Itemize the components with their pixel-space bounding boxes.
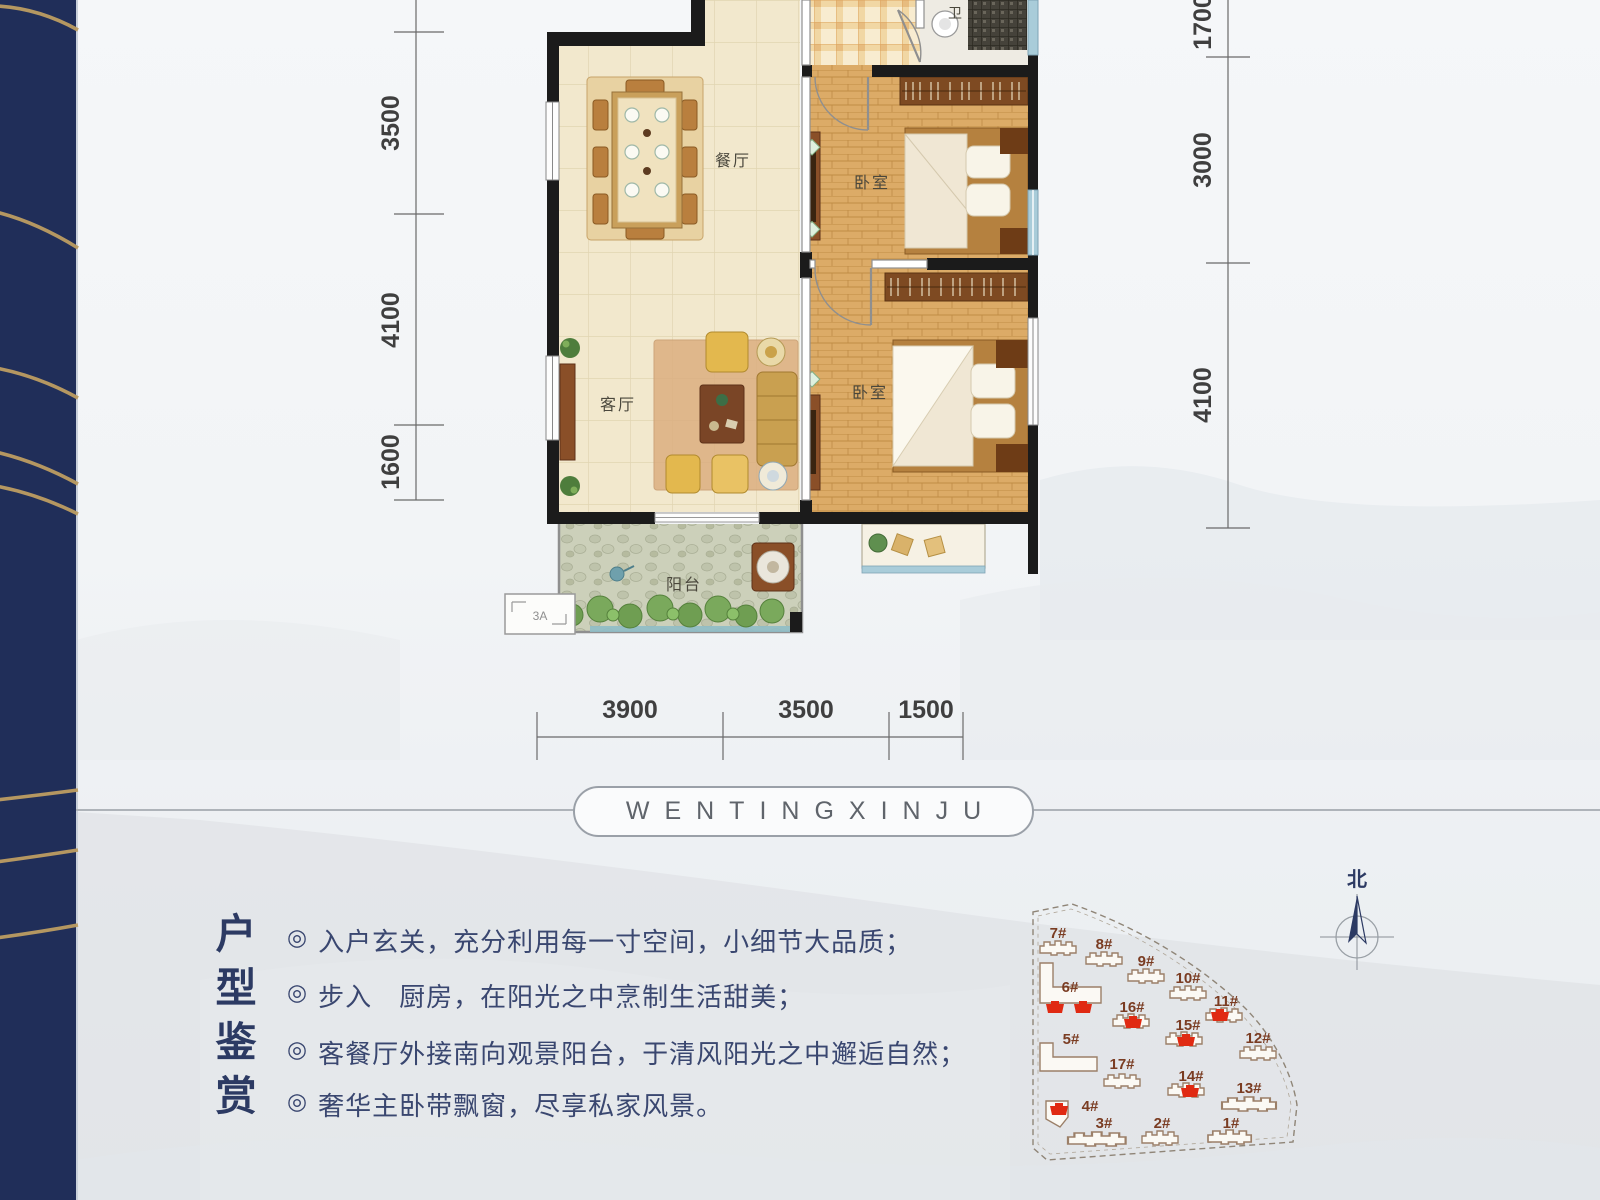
building-label-3: 3#	[1096, 1115, 1113, 1132]
floor-plan: 3A	[330, 0, 1250, 780]
page: 3A	[0, 0, 1600, 1200]
building-label-5: 5#	[1063, 1031, 1080, 1048]
building-label-10: 10#	[1175, 970, 1201, 987]
bullet-marker-icon: ◎	[287, 1088, 308, 1115]
building-label-11: 11#	[1214, 993, 1239, 1010]
coffee-table	[700, 385, 744, 443]
bed-post	[1000, 228, 1028, 254]
site-plan: 7# 8# 9# 10# 11# 6# 16# 15# 12# 5# 17# 1…	[1010, 893, 1310, 1173]
hall-floor	[705, 0, 800, 46]
watering-can	[610, 567, 624, 581]
building-label-14: 14#	[1178, 1068, 1204, 1085]
pillow	[971, 364, 1015, 398]
dim-bottom-1: 3500	[778, 696, 834, 724]
building-label-6: 6#	[1062, 979, 1079, 996]
bullet-text: 入户玄关，充分利用每一寸空间，小细节大品质；	[318, 922, 912, 959]
compass-needle	[1348, 896, 1357, 943]
kitchen-floor	[802, 0, 920, 65]
plant	[560, 476, 580, 496]
sofa	[757, 372, 797, 466]
bay-plant	[869, 534, 887, 552]
dim-left-1: 4100	[377, 292, 405, 348]
building-label-8: 8#	[1096, 936, 1113, 953]
armchair	[712, 455, 748, 493]
armchair	[706, 332, 748, 372]
dim-left-2: 1600	[377, 434, 405, 490]
bay-window	[862, 524, 985, 573]
dim-right-1: 3000	[1189, 132, 1217, 188]
project-name-banner: WENTINGXINJU	[573, 786, 1034, 837]
dim-bottom-0: 3900	[602, 696, 658, 724]
project-name-text: WENTINGXINJU	[611, 797, 996, 826]
feature-bullet: ◎ 奢华主卧带飘窗，尽享私家风景。	[287, 1086, 723, 1123]
feature-bullet: ◎ 入户玄关，充分利用每一寸空间，小细节大品质；	[287, 922, 912, 959]
building-label-13: 13#	[1236, 1080, 1262, 1097]
room-label-living: 客厅	[600, 396, 636, 414]
navy-band	[0, 0, 76, 1200]
bed-post	[1000, 128, 1028, 154]
bathroom-mosaic	[968, 0, 1027, 50]
ac-unit-label: 3A	[533, 609, 548, 623]
north-label: 北	[1347, 868, 1367, 891]
dim-right-0: 1700	[1189, 0, 1217, 50]
bullet-marker-icon: ◎	[287, 1036, 308, 1063]
building-label-15: 15#	[1175, 1017, 1201, 1034]
ac-platform: 3A	[505, 594, 575, 634]
room-label-dining: 餐厅	[715, 152, 751, 170]
building-label-9: 9#	[1138, 953, 1155, 970]
room-label-bedroom-top: 卧室	[854, 174, 890, 192]
building-label-16: 16#	[1119, 999, 1145, 1016]
bullet-text: 客餐厅外接南向观景阳台，于清风阳光之中邂逅自然；	[318, 1034, 966, 1071]
building-label-4: 4#	[1082, 1098, 1099, 1115]
bath-window	[1028, 0, 1038, 55]
bed-post	[996, 340, 1028, 368]
bullet-text: 奢华主卧带飘窗，尽享私家风景。	[318, 1086, 723, 1123]
plant	[560, 338, 580, 358]
sideboard	[560, 364, 575, 460]
dining-set	[587, 77, 703, 240]
building-label-2: 2#	[1154, 1115, 1171, 1132]
dim-right-2: 4100	[1189, 367, 1217, 423]
bed-post	[996, 444, 1028, 472]
bullet-text: 步入 厨房，在阳光之中烹制生活甜美；	[318, 977, 804, 1014]
bay-pillow	[924, 536, 945, 557]
bullet-marker-icon: ◎	[287, 979, 308, 1006]
armchair	[666, 455, 700, 493]
pillow	[966, 184, 1010, 216]
decorative-side-band	[0, 0, 80, 1200]
dim-left-0: 3500	[377, 95, 405, 151]
building-label-7: 7#	[1050, 925, 1067, 942]
pillow	[971, 404, 1015, 438]
room-label-balcony: 阳台	[666, 576, 702, 594]
building-label-1: 1#	[1223, 1115, 1240, 1132]
feature-bullet: ◎ 步入 厨房，在阳光之中烹制生活甜美；	[287, 977, 804, 1014]
section-title: 户型鉴赏	[203, 912, 261, 1128]
building-label-17: 17#	[1109, 1056, 1135, 1073]
dimension-left	[394, 0, 444, 500]
north-compass: 北	[1312, 862, 1402, 982]
dim-bottom-2: 1500	[898, 696, 954, 724]
building-label-12: 12#	[1245, 1030, 1271, 1047]
dimension-right	[1206, 0, 1250, 528]
room-label-bedroom-bottom: 卧室	[852, 384, 888, 402]
room-label-bathroom: 卫	[948, 5, 962, 21]
bullet-marker-icon: ◎	[287, 924, 308, 951]
feature-bullet: ◎ 客餐厅外接南向观景阳台，于清风阳光之中邂逅自然；	[287, 1034, 966, 1071]
